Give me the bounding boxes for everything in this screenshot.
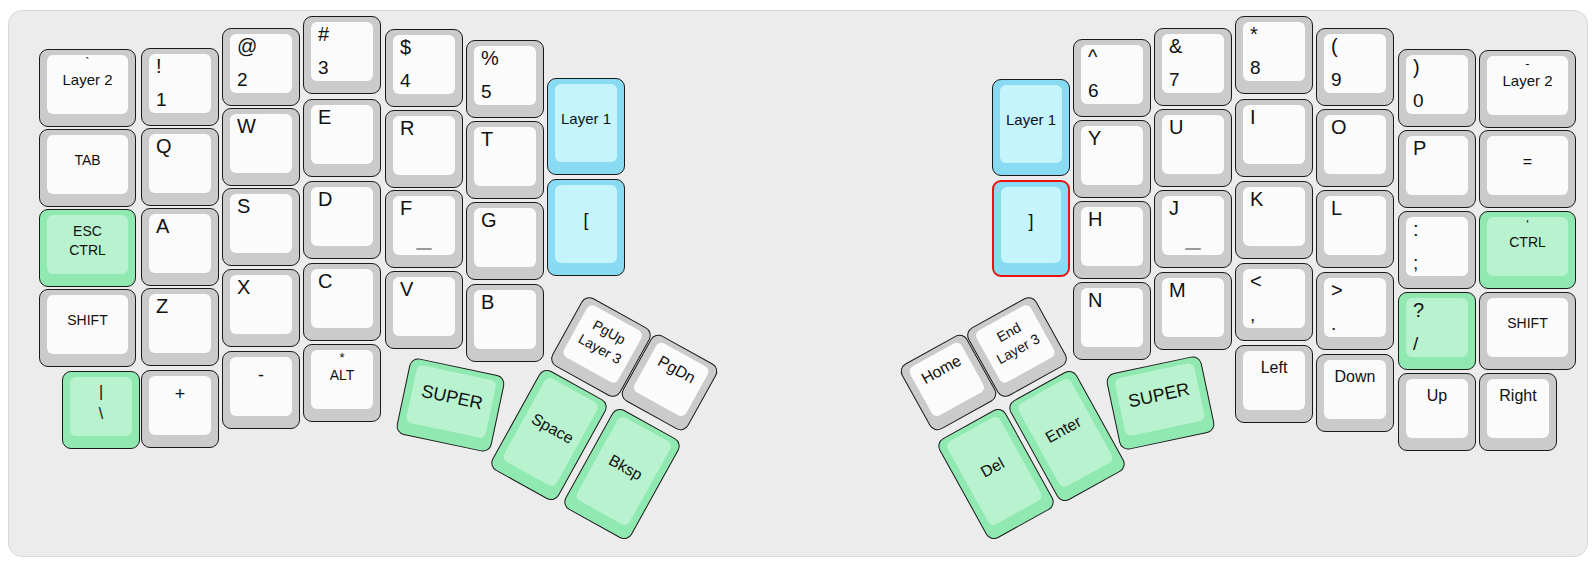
key-lt-comma-label-bl: , <box>1250 304 1255 326</box>
key-w[interactable]: W <box>222 108 300 186</box>
key-shift-left-cap: SHIFT <box>47 295 128 354</box>
key-star-8-label-tl: * <box>1250 23 1258 46</box>
key-right-arrow-cap: Right <box>1487 379 1549 438</box>
key-super-left-label-c: SUPER <box>407 364 497 431</box>
key-r-cap: R <box>393 116 455 175</box>
key-dollar-4-cap: $4 <box>393 35 455 94</box>
key-minus-layer2[interactable]: -Layer 2 <box>1479 50 1576 128</box>
page: `Layer 2TABESC CTRLSHIFT| \!1QAZ+@2WSX-#… <box>0 0 1596 567</box>
key-minus-cap: - <box>230 357 292 416</box>
key-right-arrow[interactable]: Right <box>1479 373 1557 451</box>
key-dollar-4-label-bl: 4 <box>400 70 411 92</box>
key-lparen-9[interactable]: (9 <box>1316 28 1394 106</box>
key-at-2[interactable]: @2 <box>222 28 300 106</box>
key-exclam-1-label-tl: ! <box>156 55 162 78</box>
key-super-right-cap: SUPER <box>1114 362 1205 437</box>
key-t-label-tl: T <box>481 128 493 151</box>
key-lt-comma-cap: <, <box>1243 269 1305 328</box>
key-percent-5-label-tl: % <box>481 47 499 70</box>
key-f-label-tl: F <box>400 197 412 220</box>
key-i-cap: I <box>1243 105 1305 164</box>
key-h-label-tl: H <box>1088 208 1102 231</box>
key-shift-left-label-c: SHIFT <box>47 295 128 346</box>
key-shift-right-label-c: SHIFT <box>1487 298 1568 349</box>
key-left-arrow-label-ct: Left <box>1243 359 1305 377</box>
key-z[interactable]: Z <box>141 288 219 366</box>
key-m-label-tl: M <box>1169 279 1186 302</box>
key-o-label-tl: O <box>1331 116 1347 139</box>
key-caret-6-label-tl: ^ <box>1088 46 1097 69</box>
key-left-bracket-cap: [ <box>555 185 617 263</box>
key-layer1-left-cap: Layer 1 <box>555 84 617 162</box>
key-g[interactable]: G <box>466 202 544 280</box>
key-x-cap: X <box>230 275 292 334</box>
key-minus[interactable]: - <box>222 351 300 429</box>
key-c-label-tl: C <box>318 270 332 293</box>
key-grave-layer2[interactable]: `Layer 2 <box>39 49 136 127</box>
key-minus-layer2-cap: -Layer 2 <box>1487 56 1568 115</box>
key-n[interactable]: N <box>1073 282 1151 360</box>
key-l[interactable]: L <box>1316 190 1394 268</box>
key-r[interactable]: R <box>385 110 463 188</box>
key-x-label-tl: X <box>237 276 250 299</box>
key-hash-3-label-bl: 3 <box>318 57 329 79</box>
key-lparen-9-label-bl: 9 <box>1331 69 1342 91</box>
key-e-label-tl: E <box>318 106 331 129</box>
key-f-cap: F <box>393 196 455 255</box>
key-amp-7-label-bl: 7 <box>1169 69 1180 91</box>
key-i-label-tl: I <box>1250 106 1256 129</box>
key-percent-5-cap: %5 <box>474 46 536 105</box>
key-at-2-label-bl: 2 <box>237 69 248 91</box>
key-p-label-tl: P <box>1413 137 1426 160</box>
key-rparen-0-label-bl: 0 <box>1413 90 1424 112</box>
key-n-cap: N <box>1081 288 1143 347</box>
key-a[interactable]: A <box>141 208 219 286</box>
key-amp-7-cap: &7 <box>1162 34 1224 93</box>
key-esc-ctrl-label-c: ESC CTRL <box>47 215 128 266</box>
key-f-homing-bar <box>416 248 432 251</box>
key-f[interactable]: F <box>385 190 463 268</box>
key-lt-comma[interactable]: <, <box>1235 263 1313 341</box>
key-c-cap: C <box>311 269 373 328</box>
key-equals-cap: = <box>1487 136 1568 195</box>
key-y-cap: Y <box>1081 126 1143 185</box>
key-grave-layer2-label-c: Layer 2 <box>47 55 128 106</box>
key-p-cap: P <box>1406 136 1468 195</box>
key-exclam-1-cap: !1 <box>149 54 211 113</box>
key-z-cap: Z <box>149 294 211 353</box>
key-right-bracket-cap: ] <box>1001 187 1061 263</box>
key-question-slash-label-tl: ? <box>1413 299 1424 322</box>
key-d-cap: D <box>311 187 373 246</box>
key-right-arrow-label-ct: Right <box>1487 387 1549 405</box>
key-minus-label-ct: - <box>230 365 292 386</box>
key-tab[interactable]: TAB <box>39 129 136 207</box>
key-star-alt-label-c: ALT <box>311 350 373 401</box>
key-at-2-cap: @2 <box>230 34 292 93</box>
key-d[interactable]: D <box>303 181 381 259</box>
key-super-right-label-c: SUPER <box>1114 362 1204 429</box>
key-layer1-right-cap: Layer 1 <box>1000 85 1062 163</box>
key-rparen-0[interactable]: )0 <box>1398 49 1476 127</box>
key-o-cap: O <box>1324 115 1386 174</box>
key-tab-cap: TAB <box>47 135 128 194</box>
key-u-cap: U <box>1162 115 1224 174</box>
key-question-slash[interactable]: ?/ <box>1398 292 1476 370</box>
key-left-bracket-label-c: [ <box>555 185 617 255</box>
key-pgdn-label-ct: PgDn <box>646 348 706 392</box>
key-pipe-backslash[interactable]: | \ <box>62 371 140 449</box>
key-pipe-backslash-cap: | \ <box>70 377 132 436</box>
key-at-2-label-tl: @ <box>237 35 257 58</box>
key-plus-cap: + <box>149 376 211 435</box>
key-super-left-cap: SUPER <box>405 364 496 439</box>
key-e[interactable]: E <box>303 99 381 177</box>
key-layer1-right[interactable]: Layer 1 <box>992 79 1070 176</box>
key-percent-5-label-bl: 5 <box>481 81 492 103</box>
key-g-label-tl: G <box>481 209 497 232</box>
key-star-alt[interactable]: *ALT <box>303 344 381 422</box>
key-hash-3-label-tl: # <box>318 23 329 46</box>
key-colon-semicolon-cap: :; <box>1406 217 1468 276</box>
key-tab-label-c: TAB <box>47 135 128 186</box>
key-s-cap: S <box>230 194 292 253</box>
key-exclam-1[interactable]: !1 <box>141 48 219 126</box>
key-w-cap: W <box>230 114 292 173</box>
key-colon-semicolon[interactable]: :; <box>1398 211 1476 289</box>
key-g-cap: G <box>474 208 536 267</box>
key-esc-ctrl-cap: ESC CTRL <box>47 215 128 274</box>
key-y-label-tl: Y <box>1088 127 1101 150</box>
key-down-arrow[interactable]: Down <box>1316 354 1394 432</box>
key-l-label-tl: L <box>1331 197 1342 220</box>
key-star-8[interactable]: *8 <box>1235 16 1313 94</box>
key-u[interactable]: U <box>1154 109 1232 187</box>
key-minus-layer2-label-c: Layer 2 <box>1487 56 1568 107</box>
key-j-label-tl: J <box>1169 197 1179 220</box>
key-v-cap: V <box>393 277 455 336</box>
key-amp-7-label-tl: & <box>1169 35 1182 58</box>
key-e-cap: E <box>311 105 373 164</box>
key-k[interactable]: K <box>1235 181 1313 259</box>
key-b-label-tl: B <box>481 291 494 314</box>
key-m[interactable]: M <box>1154 272 1232 350</box>
key-o[interactable]: O <box>1316 109 1394 187</box>
key-equals-label-c: = <box>1487 136 1568 187</box>
key-w-label-tl: W <box>237 115 256 138</box>
key-equals[interactable]: = <box>1479 130 1576 208</box>
key-k-label-tl: K <box>1250 188 1263 211</box>
key-rparen-0-label-tl: ) <box>1413 56 1420 79</box>
key-shift-right[interactable]: SHIFT <box>1479 292 1576 370</box>
key-b-cap: B <box>474 290 536 349</box>
key-dollar-4[interactable]: $4 <box>385 29 463 107</box>
key-question-slash-label-bl: / <box>1413 333 1418 355</box>
key-up-arrow-cap: Up <box>1406 379 1468 438</box>
key-grave-layer2-cap: `Layer 2 <box>47 55 128 114</box>
key-lt-comma-label-tl: < <box>1250 270 1262 293</box>
key-home-label-ct: Home <box>911 348 971 392</box>
key-lparen-9-label-tl: ( <box>1331 35 1338 58</box>
key-s[interactable]: S <box>222 188 300 266</box>
key-star-8-cap: *8 <box>1243 22 1305 81</box>
key-down-arrow-label-ct: Down <box>1324 368 1386 386</box>
key-quote-ctrl[interactable]: 'CTRL <box>1479 211 1576 289</box>
key-star-8-label-bl: 8 <box>1250 57 1261 79</box>
key-caret-6[interactable]: ^6 <box>1073 39 1151 117</box>
key-m-cap: M <box>1162 278 1224 337</box>
key-up-arrow-label-ct: Up <box>1406 387 1468 405</box>
key-a-cap: A <box>149 214 211 273</box>
key-k-cap: K <box>1243 187 1305 246</box>
key-exclam-1-label-bl: 1 <box>156 89 167 111</box>
key-layer1-left[interactable]: Layer 1 <box>547 78 625 175</box>
key-percent-5[interactable]: %5 <box>466 40 544 118</box>
key-j-homing-bar <box>1185 248 1201 251</box>
key-shift-left[interactable]: SHIFT <box>39 289 136 367</box>
key-q[interactable]: Q <box>141 128 219 206</box>
key-quote-ctrl-label-c: CTRL <box>1487 217 1568 268</box>
key-a-label-tl: A <box>156 215 169 238</box>
key-up-arrow[interactable]: Up <box>1398 373 1476 451</box>
key-left-arrow-cap: Left <box>1243 351 1305 410</box>
key-p[interactable]: P <box>1398 130 1476 208</box>
key-question-slash-cap: ?/ <box>1406 298 1468 357</box>
key-caret-6-label-bl: 6 <box>1088 80 1099 102</box>
key-plus-label-ct: + <box>149 384 211 405</box>
key-down-arrow-cap: Down <box>1324 360 1386 419</box>
key-y[interactable]: Y <box>1073 120 1151 198</box>
key-c[interactable]: C <box>303 263 381 341</box>
key-layer1-right-label-c: Layer 1 <box>1000 85 1062 155</box>
key-v[interactable]: V <box>385 271 463 349</box>
key-plus[interactable]: + <box>141 370 219 448</box>
key-q-cap: Q <box>149 134 211 193</box>
key-t[interactable]: T <box>466 121 544 199</box>
key-gt-period[interactable]: >. <box>1316 272 1394 350</box>
key-x[interactable]: X <box>222 269 300 347</box>
key-h-cap: H <box>1081 207 1143 266</box>
key-right-bracket-label-c: ] <box>1001 187 1061 255</box>
key-b[interactable]: B <box>466 284 544 362</box>
key-quote-ctrl-cap: 'CTRL <box>1487 217 1568 276</box>
key-caret-6-cap: ^6 <box>1081 45 1143 104</box>
key-left-bracket[interactable]: [ <box>547 179 625 276</box>
key-i[interactable]: I <box>1235 99 1313 177</box>
key-gt-period-label-tl: > <box>1331 279 1343 302</box>
key-amp-7[interactable]: &7 <box>1154 28 1232 106</box>
key-d-label-tl: D <box>318 188 332 211</box>
key-j[interactable]: J <box>1154 190 1232 268</box>
key-layer1-left-label-c: Layer 1 <box>555 84 617 154</box>
key-left-arrow[interactable]: Left <box>1235 345 1313 423</box>
key-right-bracket[interactable]: ] <box>992 180 1070 277</box>
key-q-label-tl: Q <box>156 135 172 158</box>
key-colon-semicolon-label-bl: ; <box>1413 252 1418 274</box>
key-dollar-4-label-tl: $ <box>400 36 411 59</box>
key-t-cap: T <box>474 127 536 186</box>
key-rparen-0-cap: )0 <box>1406 55 1468 114</box>
key-l-cap: L <box>1324 196 1386 255</box>
key-colon-semicolon-label-tl: : <box>1413 218 1419 241</box>
key-v-label-tl: V <box>400 278 413 301</box>
key-j-cap: J <box>1162 196 1224 255</box>
key-lparen-9-cap: (9 <box>1324 34 1386 93</box>
key-pipe-backslash-label-c: | \ <box>70 377 132 428</box>
key-r-label-tl: R <box>400 117 414 140</box>
key-gt-period-label-bl: . <box>1331 313 1336 335</box>
key-esc-ctrl[interactable]: ESC CTRL <box>39 209 136 287</box>
key-shift-right-cap: SHIFT <box>1487 298 1568 357</box>
key-n-label-tl: N <box>1088 289 1102 312</box>
key-h[interactable]: H <box>1073 201 1151 279</box>
key-z-label-tl: Z <box>156 295 168 318</box>
key-gt-period-cap: >. <box>1324 278 1386 337</box>
key-u-label-tl: U <box>1169 116 1183 139</box>
key-s-label-tl: S <box>237 195 250 218</box>
key-star-alt-cap: *ALT <box>311 350 373 409</box>
key-hash-3-cap: #3 <box>311 22 373 81</box>
key-hash-3[interactable]: #3 <box>303 16 381 94</box>
